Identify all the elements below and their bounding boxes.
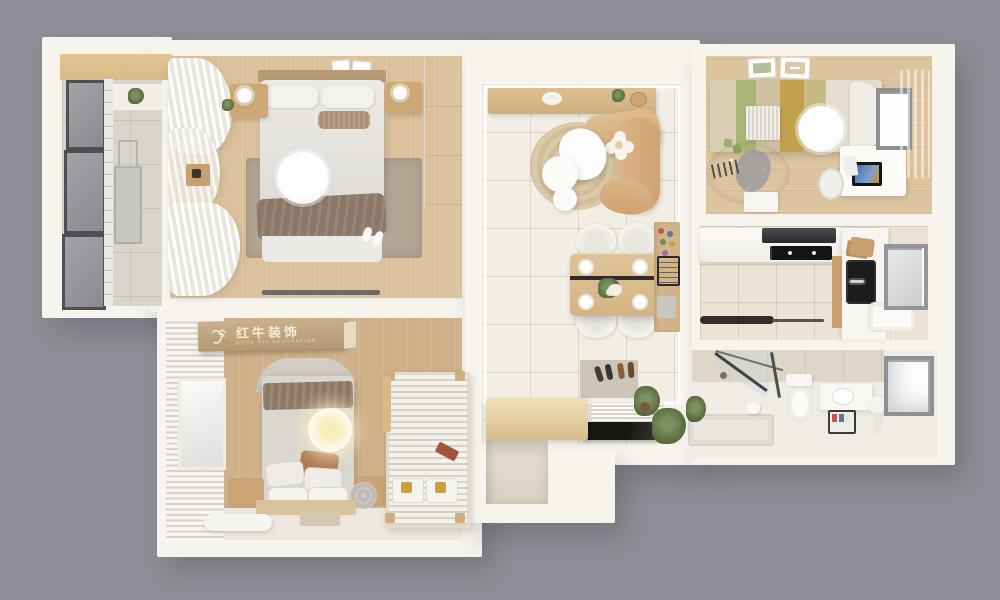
dining-plate-1 — [578, 259, 594, 275]
bathroom-window — [884, 356, 934, 416]
daybed-post-br — [455, 513, 465, 523]
floorplan-canvas: 红牛装饰 HONG NIU DECORATION — [0, 0, 1000, 600]
daybed-side-rail — [382, 376, 391, 432]
entry-shoe-4 — [627, 362, 634, 378]
kids-picture-frame-2 — [780, 56, 811, 79]
entry-shoe-cabinet-black — [582, 422, 658, 440]
daybed-pillow-gold-2 — [435, 482, 446, 493]
kitchen-lower-bar — [700, 316, 774, 324]
kids-toy-1 — [723, 138, 732, 147]
kids-desk-chair — [818, 168, 844, 200]
kitchen-cooktop-knob-1 — [788, 251, 792, 255]
dining-chair-1 — [576, 224, 616, 256]
kitchen-cooktop-knob-2 — [812, 251, 816, 255]
coffee-table-round — [542, 156, 578, 192]
bathroom-bottles — [832, 414, 837, 422]
kitchen-faucet — [850, 280, 864, 283]
master-lamp-right — [393, 86, 407, 100]
brand-signboard-side — [344, 321, 356, 349]
master-wardrobe — [424, 58, 463, 208]
master-side-table-decor — [192, 169, 201, 178]
balcony-window-mullion — [104, 78, 113, 306]
kids-curtain — [900, 70, 930, 178]
balcony-drying-rack — [114, 166, 142, 244]
pegboard-bin — [657, 296, 676, 318]
vanity-basin — [832, 388, 854, 405]
kitchen-cooktop — [770, 246, 832, 260]
master-pillow-1 — [266, 86, 318, 108]
balcony-rack-bar — [118, 140, 138, 168]
daybed-post-tr — [455, 371, 465, 381]
dining-plate-4 — [632, 294, 648, 310]
kitchen-range-hood — [762, 228, 836, 243]
bedroom2-glow-lamp — [308, 408, 352, 452]
kids-fringe-blanket — [746, 106, 780, 140]
balcony-window-2 — [64, 150, 106, 234]
brand-signboard: 红牛装饰 HONG NIU DECORATION — [198, 318, 345, 352]
bedroom2-pillow-1 — [265, 460, 305, 488]
kids-shelf — [744, 192, 778, 212]
kitchen-lower-bar-thin — [772, 319, 824, 322]
bedroom2-bench — [204, 514, 272, 531]
entry-plant-pot — [640, 402, 650, 412]
bull-icon — [210, 326, 231, 347]
kitchen-window — [884, 244, 928, 310]
bedroom2-throw-blanket — [263, 381, 354, 410]
toilet-paper-holder — [746, 402, 760, 414]
dining-plate-3 — [578, 294, 594, 310]
dining-chair-2 — [618, 223, 656, 255]
master-pillow-accent — [318, 111, 370, 129]
kitchen-cabinet-wood-side — [832, 256, 842, 328]
bedroom2-floor-mat — [300, 512, 340, 526]
console-basket — [630, 92, 647, 107]
toilet-tank — [786, 374, 812, 386]
pegboard-wire-basket — [657, 256, 680, 286]
dining-plate-2 — [632, 259, 648, 275]
kids-picture-frame-1 — [747, 57, 776, 78]
master-pillow-3 — [270, 112, 314, 128]
entry-wood-cabinet — [486, 398, 588, 440]
shower-head — [720, 372, 727, 379]
kids-monitor-screen — [855, 165, 879, 183]
kids-toy-2 — [732, 144, 741, 153]
master-pillow-2 — [322, 86, 374, 108]
console-dish — [542, 92, 562, 105]
daybed-post-bl — [385, 513, 395, 523]
coffee-table-small — [553, 187, 577, 211]
balcony-cabinet — [60, 54, 172, 80]
pegboard-items — [658, 228, 664, 234]
entry-storage-niche — [486, 440, 548, 504]
daybed-pillow-gold-1 — [401, 482, 412, 493]
kids-ceiling-lamp — [798, 106, 844, 152]
kitchen-cutting-boards — [849, 236, 875, 257]
master-lamp-left — [237, 88, 252, 103]
bedroom2-window — [178, 378, 226, 470]
kids-desk-paper — [843, 155, 859, 177]
master-tv-console-line — [262, 290, 380, 295]
master-ceiling-lamp — [277, 152, 329, 204]
toilet-bowl — [787, 386, 813, 422]
balcony-window-3 — [62, 234, 106, 310]
brand-text-group: 红牛装饰 HONG NIU DECORATION — [236, 324, 317, 345]
flower-pouf-center — [615, 141, 623, 149]
balcony-window-1 — [66, 80, 106, 150]
